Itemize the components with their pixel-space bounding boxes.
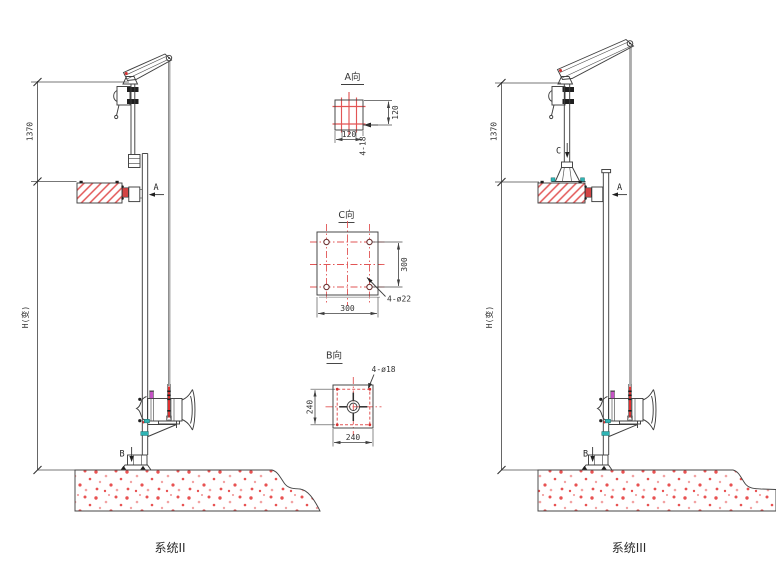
- ground: [502, 470, 776, 511]
- system-iii-caption: 系统III: [612, 541, 647, 555]
- detail-a-dim-width: 120: [342, 130, 357, 139]
- section-b-label: B: [119, 450, 124, 460]
- detail-c-holes-label: 4-ø22: [387, 295, 411, 304]
- detail-c-title: C向: [338, 209, 354, 221]
- dim-1370-label: 1370: [26, 122, 35, 141]
- valve-red: [122, 188, 128, 197]
- concrete-ground: [538, 470, 776, 511]
- system-ii-caption: 系统II: [154, 541, 185, 555]
- detail-b-dim-height: 240: [306, 400, 315, 415]
- detail-c-dim-width: 300: [340, 304, 355, 313]
- detail-b-dim-width: 240: [346, 433, 361, 442]
- cad-drawing: 1370 H(变): [0, 0, 776, 588]
- detail-a-holes-label: 4-18: [359, 136, 368, 155]
- section-a-label: A: [617, 183, 622, 193]
- dim-H-label: H(变): [20, 306, 30, 328]
- valve-red: [585, 188, 591, 197]
- section-b-label: B: [583, 450, 588, 460]
- detail-c-dim-height: 300: [400, 257, 409, 272]
- dim-1370-label: 1370: [490, 122, 499, 141]
- drawing-sheet: 1370 H(变): [0, 0, 776, 588]
- detail-a-dim-height: 120: [391, 105, 400, 120]
- section-c-label: C: [556, 147, 561, 157]
- section-a-label: A: [153, 183, 158, 193]
- detail-b-holes-label: 4-ø18: [372, 365, 396, 374]
- detail-a-title: A向: [345, 71, 361, 83]
- detail-b-title: B向: [326, 350, 342, 362]
- ground: [38, 470, 321, 511]
- dim-H-label: H(变): [484, 306, 494, 328]
